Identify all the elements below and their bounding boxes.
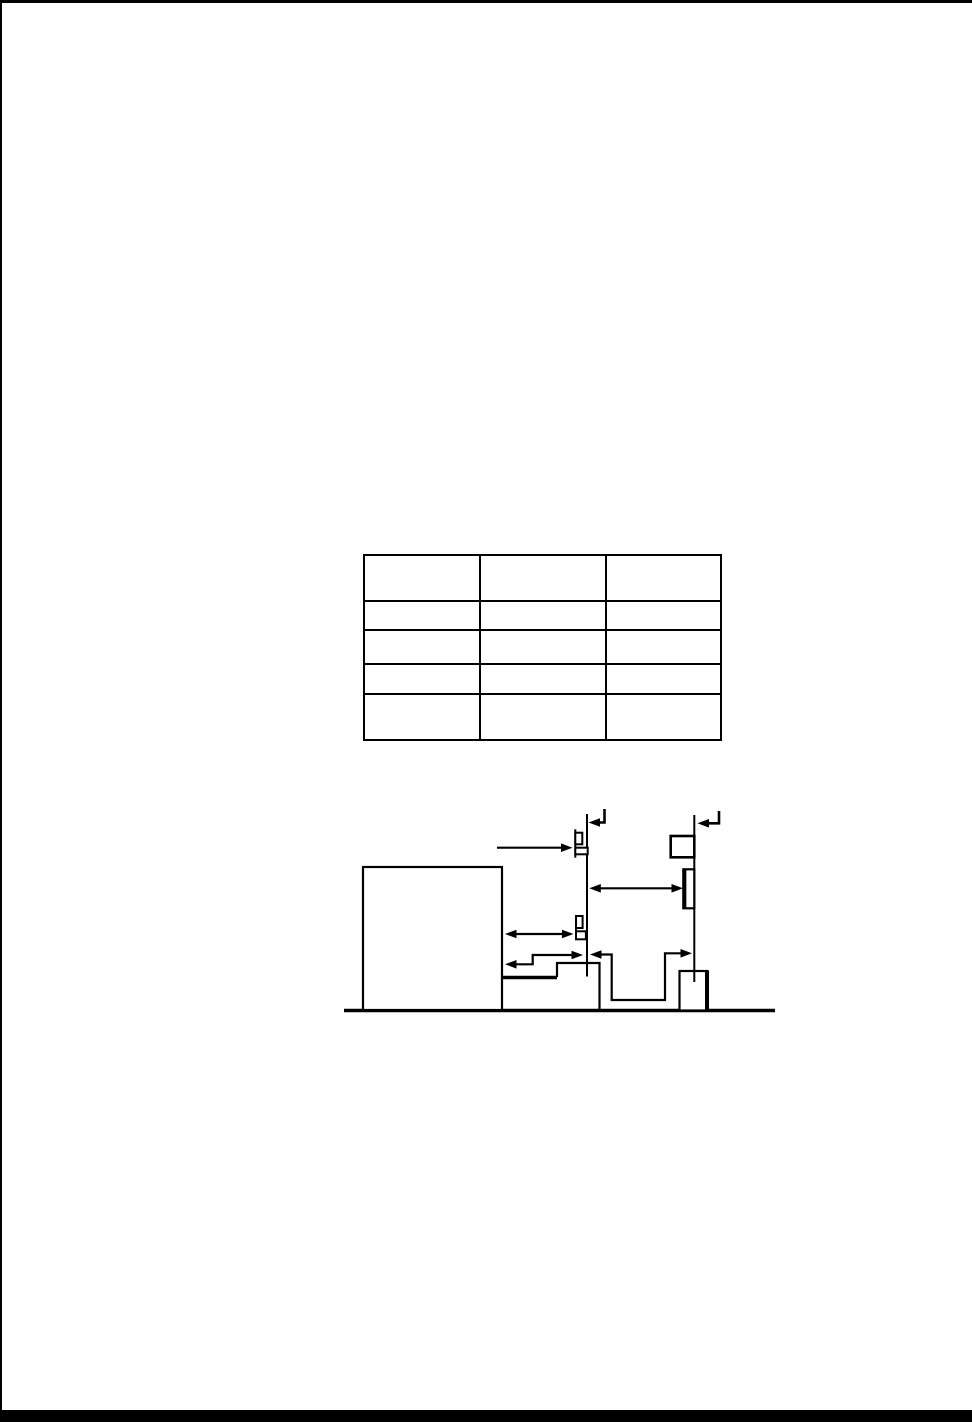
- pointer-arrow: [497, 843, 573, 852]
- dimension-arrow-a: [589, 884, 683, 893]
- arrowhead-right-icon: [562, 930, 574, 939]
- corner-hook-arrow-1: [589, 809, 605, 827]
- arrowhead-left-icon: [505, 960, 517, 969]
- clamp-symbol-middle: [576, 916, 586, 940]
- figure-diagram: [0, 0, 972, 1422]
- large-box: [363, 867, 502, 1010]
- arrowhead-left-icon: [505, 930, 517, 939]
- box-on-line2-top: [671, 836, 695, 857]
- arrowhead-right-icon: [672, 884, 684, 893]
- arrowhead-right-icon: [681, 949, 693, 958]
- arrowhead-left-icon: [589, 818, 601, 827]
- jogged-dimension-c: [505, 951, 583, 969]
- jogged-dimension-d: [590, 949, 692, 1000]
- corner-hook-arrow-2: [698, 811, 720, 828]
- clamp-symbol-top: [575, 829, 587, 857]
- arrowhead-left-icon: [698, 819, 710, 828]
- document-page: [0, 0, 972, 1422]
- dimension-arrow-b: [505, 930, 574, 939]
- arrowhead-right-icon: [572, 951, 584, 960]
- arrowhead-right-icon: [561, 843, 573, 852]
- arrowhead-left-icon: [589, 884, 601, 893]
- tall-box-on-line2: [683, 869, 694, 908]
- arrowhead-left-icon: [590, 950, 602, 959]
- step-platform: [557, 963, 600, 1010]
